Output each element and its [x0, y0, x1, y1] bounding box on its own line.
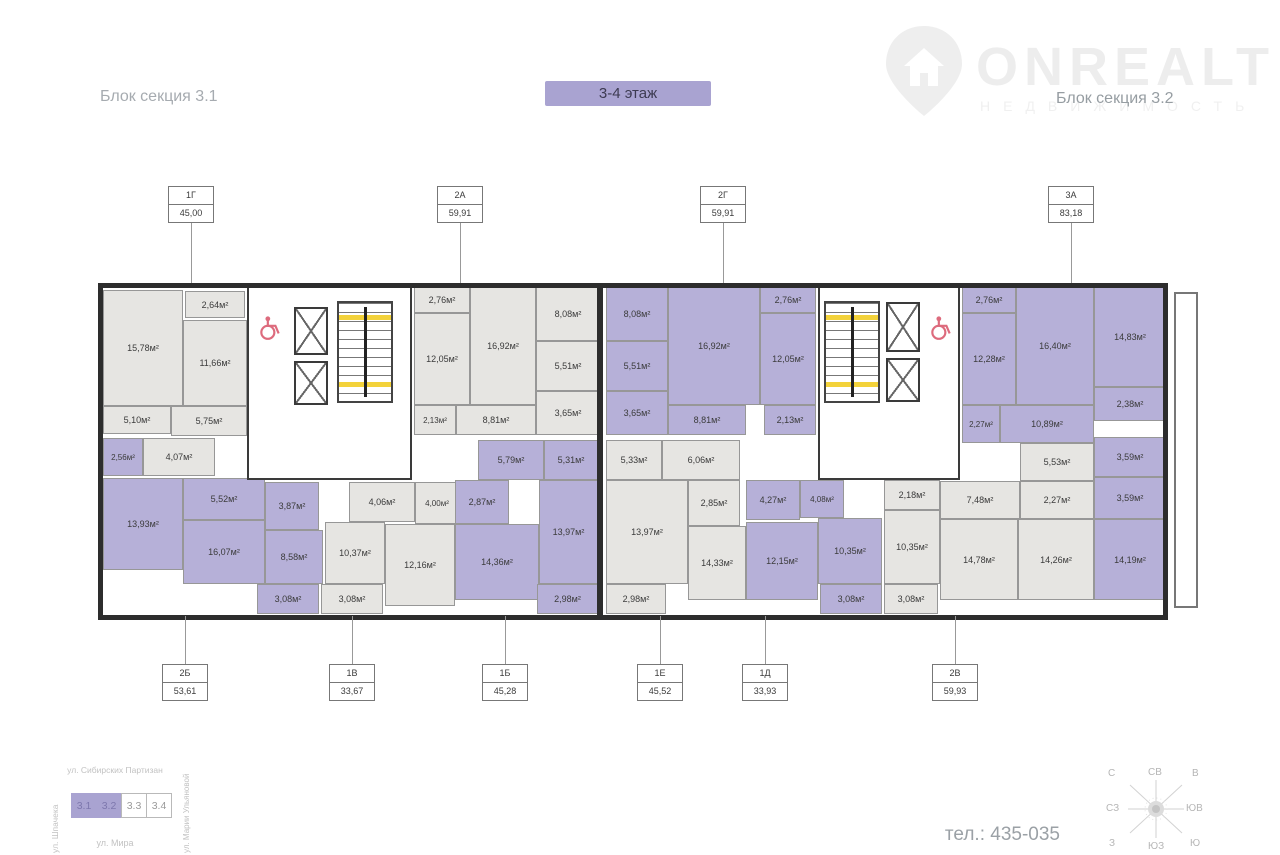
section-divider-wall — [597, 285, 603, 618]
room: 8,08м² — [536, 287, 600, 341]
room: 13,93м² — [103, 478, 183, 570]
unit-code: 1Е — [638, 665, 682, 682]
room: 2,27м² — [1020, 481, 1094, 519]
room-area-label: 8,58м² — [281, 552, 308, 562]
room: 14,78м² — [940, 519, 1018, 600]
unit-total-area: 33,67 — [330, 682, 374, 700]
unit-total-area: 33,93 — [743, 682, 787, 700]
unit-total-area: 59,91 — [438, 204, 482, 222]
room-area-label: 2,87м² — [469, 497, 496, 507]
room-area-label: 4,27м² — [760, 495, 787, 505]
room-area-label: 2,76м² — [429, 295, 456, 305]
stair-core-2 — [818, 285, 960, 480]
room-area-label: 3,08м² — [898, 594, 925, 604]
room-area-label: 3,65м² — [624, 408, 651, 418]
unit-total-area: 83,18 — [1049, 204, 1093, 222]
room: 14,33м² — [688, 526, 746, 600]
unit-total-area: 45,28 — [483, 682, 527, 700]
room-area-label: 10,89м² — [1031, 419, 1063, 429]
room: 10,37м² — [325, 522, 385, 584]
room-area-label: 2,38м² — [1117, 399, 1144, 409]
room-area-label: 4,06м² — [369, 497, 396, 507]
room: 2,13м² — [414, 405, 456, 435]
compass-direction-З: З — [1109, 838, 1115, 849]
room: 3,87м² — [265, 482, 319, 530]
room-area-label: 14,26м² — [1040, 555, 1072, 565]
unit-code: 3А — [1049, 187, 1093, 204]
section-left-label: Блок секция 3.1 — [100, 88, 218, 106]
room: 2,76м² — [414, 287, 470, 313]
room: 3,08м² — [884, 584, 938, 614]
unit-code: 1Г — [169, 187, 213, 204]
room-area-label: 12,05м² — [426, 354, 458, 364]
elevator-icon — [886, 358, 920, 402]
room-area-label: 5,75м² — [196, 416, 223, 426]
room: 4,00м² — [415, 482, 459, 524]
room: 6,06м² — [662, 440, 740, 480]
room: 8,81м² — [456, 405, 536, 435]
room: 5,10м² — [103, 406, 171, 434]
room-area-label: 13,97м² — [553, 527, 585, 537]
unit-code: 2В — [933, 665, 977, 682]
room: 2,85м² — [688, 480, 740, 526]
phone-number: тел.: 435-035 — [860, 824, 1060, 846]
unit-code: 2Г — [701, 187, 745, 204]
unit-tag-1В: 1В33,67 — [329, 664, 375, 701]
room-area-label: 2,27м² — [1044, 495, 1071, 505]
room: 10,89м² — [1000, 405, 1094, 443]
tag-connector-line — [1071, 222, 1072, 283]
staircase — [337, 301, 393, 403]
room-area-label: 14,19м² — [1114, 555, 1146, 565]
room-area-label: 12,16м² — [404, 560, 436, 570]
room: 16,92м² — [668, 287, 760, 405]
room-area-label: 14,36м² — [481, 557, 513, 567]
room-area-label: 10,35м² — [896, 542, 928, 552]
room-area-label: 4,08м² — [810, 495, 834, 504]
unit-tag-2В: 2В59,93 — [932, 664, 978, 701]
room-area-label: 13,93м² — [127, 519, 159, 529]
room-area-label: 14,78м² — [963, 555, 995, 565]
compass-direction-В: В — [1192, 768, 1199, 779]
room-area-label: 8,08м² — [624, 309, 651, 319]
logo-wordmark: ONREALT — [976, 36, 1275, 98]
unit-total-area: 59,93 — [933, 682, 977, 700]
unit-tag-1Г: 1Г45,00 — [168, 186, 214, 223]
room: 5,52м² — [183, 478, 265, 520]
room: 12,16м² — [385, 524, 455, 606]
room-area-label: 10,37м² — [339, 548, 371, 558]
block-tab-3.1[interactable]: 3.1 — [71, 793, 97, 818]
room: 3,59м² — [1094, 477, 1166, 519]
room-area-label: 13,97м² — [631, 527, 663, 537]
unit-tag-1Д: 1Д33,93 — [742, 664, 788, 701]
tag-connector-line — [185, 616, 186, 664]
room: 16,07м² — [183, 520, 265, 584]
room: 12,05м² — [760, 313, 816, 405]
room: 13,97м² — [539, 480, 598, 584]
room-area-label: 5,31м² — [558, 455, 585, 465]
room: 10,35м² — [818, 518, 882, 584]
room: 12,05м² — [414, 313, 470, 405]
room-area-label: 11,66м² — [199, 358, 230, 368]
room-area-label: 16,92м² — [487, 341, 519, 351]
tag-connector-line — [660, 616, 661, 664]
room: 3,08м² — [257, 584, 319, 614]
street-label-bottom: ул. Мира — [40, 838, 190, 848]
room-area-label: 15,78м² — [127, 343, 159, 353]
block-selector: 3.13.23.33.4 — [71, 793, 172, 818]
room-area-label: 5,51м² — [624, 361, 651, 371]
room: 2,76м² — [760, 287, 816, 313]
room-area-label: 2,18м² — [899, 490, 926, 500]
room-area-label: 2,13м² — [423, 416, 447, 425]
unit-tag-2Г: 2Г59,91 — [700, 186, 746, 223]
room-area-label: 3,08м² — [838, 594, 865, 604]
room-area-label: 5,10м² — [124, 415, 151, 425]
stair-rail — [851, 307, 854, 397]
room: 8,81м² — [668, 405, 746, 435]
tag-connector-line — [505, 616, 506, 664]
room: 16,92м² — [470, 287, 536, 405]
unit-code: 1Д — [743, 665, 787, 682]
room: 2,13м² — [764, 405, 816, 435]
room: 2,87м² — [455, 480, 509, 524]
room: 15,78м² — [103, 290, 183, 406]
room-area-label: 12,05м² — [772, 354, 804, 364]
room: 8,58м² — [265, 530, 323, 584]
room: 4,06м² — [349, 482, 415, 522]
room: 3,65м² — [606, 391, 668, 435]
unit-tag-3А: 3А83,18 — [1048, 186, 1094, 223]
unit-tag-2Б: 2Б53,61 — [162, 664, 208, 701]
wheelchair-icon — [928, 315, 954, 341]
unit-total-area: 45,52 — [638, 682, 682, 700]
room-area-label: 2,13м² — [777, 415, 804, 425]
room-area-label: 2,27м² — [969, 420, 993, 429]
elevator-icon — [294, 307, 328, 355]
elevator-icon — [294, 361, 328, 405]
room: 4,08м² — [800, 480, 844, 518]
unit-code: 1Б — [483, 665, 527, 682]
room: 5,79м² — [478, 440, 544, 480]
room: 2,98м² — [537, 584, 598, 614]
room-area-label: 7,48м² — [967, 495, 994, 505]
room: 5,51м² — [606, 341, 668, 391]
room-area-label: 4,00м² — [425, 499, 449, 508]
room: 3,59м² — [1094, 437, 1166, 477]
room: 16,40м² — [1016, 287, 1094, 405]
room-area-label: 16,92м² — [698, 341, 730, 351]
room: 8,08м² — [606, 287, 668, 341]
compass-rose: ССВВСЗЮВЗЮЗЮ — [1098, 764, 1218, 855]
onrealt-logo: ONREALT НЕДВИЖИМОСТЬ — [876, 18, 1256, 128]
compass-direction-С: С — [1108, 768, 1115, 779]
street-label-right: ул. Марии Ульяновой — [182, 768, 191, 853]
compass-direction-Ю: Ю — [1190, 838, 1200, 849]
tag-connector-line — [765, 616, 766, 664]
room: 11,66м² — [183, 320, 247, 406]
room: 5,33м² — [606, 440, 662, 480]
room: 5,53м² — [1020, 443, 1094, 481]
room: 2,64м² — [185, 291, 245, 318]
room-area-label: 2,98м² — [554, 594, 581, 604]
unit-code: 2Б — [163, 665, 207, 682]
room: 7,48м² — [940, 481, 1020, 519]
room-area-label: 2,85м² — [701, 498, 728, 508]
floor-badge: 3-4 этаж — [545, 81, 711, 106]
room: 2,27м² — [962, 405, 1000, 443]
room: 14,26м² — [1018, 519, 1094, 600]
room-area-label: 3,87м² — [279, 501, 306, 511]
room-area-label: 5,79м² — [498, 455, 525, 465]
room-area-label: 5,33м² — [621, 455, 648, 465]
room: 4,27м² — [746, 480, 800, 520]
room: 4,07м² — [143, 438, 215, 476]
room-area-label: 3,08м² — [339, 594, 366, 604]
stair-rail — [364, 307, 367, 397]
room-area-label: 5,53м² — [1044, 457, 1071, 467]
unit-code: 1В — [330, 665, 374, 682]
room: 14,19м² — [1094, 519, 1166, 600]
room: 3,08м² — [820, 584, 882, 614]
room-area-label: 4,07м² — [166, 452, 193, 462]
room-area-label: 3,65м² — [555, 408, 582, 418]
tag-connector-line — [352, 616, 353, 664]
room: 3,08м² — [321, 584, 383, 614]
room: 13,97м² — [606, 480, 688, 584]
room: 12,15м² — [746, 522, 818, 600]
unit-code: 2А — [438, 187, 482, 204]
room-area-label: 5,51м² — [555, 361, 582, 371]
tag-connector-line — [723, 222, 724, 283]
elevator-icon — [886, 302, 920, 352]
unit-tag-1Е: 1Е45,52 — [637, 664, 683, 701]
room: 2,98м² — [606, 584, 666, 614]
room-area-label: 14,83м² — [1114, 332, 1146, 342]
room-area-label: 14,33м² — [701, 558, 733, 568]
room-area-label: 3,59м² — [1117, 452, 1144, 462]
logo-pin-house-icon — [876, 20, 972, 122]
compass-direction-ЮВ: ЮВ — [1186, 803, 1203, 814]
room-area-label: 8,81м² — [483, 415, 510, 425]
block-tab-3.3[interactable]: 3.3 — [121, 793, 147, 818]
room-area-label: 8,81м² — [694, 415, 721, 425]
room-area-label: 16,40м² — [1039, 341, 1071, 351]
room: 5,75м² — [171, 406, 247, 436]
room: 12,28м² — [962, 313, 1016, 405]
compass-direction-СЗ: СЗ — [1106, 803, 1119, 814]
tag-connector-line — [460, 222, 461, 283]
tag-connector-line — [955, 616, 956, 664]
street-label-top: ул. Сибирских Партизан — [40, 765, 190, 775]
unit-total-area: 53,61 — [163, 682, 207, 700]
room-area-label: 5,52м² — [211, 494, 238, 504]
room-area-label: 2,76м² — [976, 295, 1003, 305]
side-balcony-strip — [1174, 292, 1198, 608]
room-area-label: 6,06м² — [688, 455, 715, 465]
room: 5,51м² — [536, 341, 600, 391]
floorplan-page: Блок секция 3.1 3-4 этаж ONREALT НЕДВИЖИ… — [0, 0, 1280, 855]
wheelchair-icon — [257, 315, 283, 341]
room-area-label: 2,56м² — [111, 453, 135, 462]
tag-connector-line — [191, 222, 192, 283]
staircase — [824, 301, 880, 403]
section-right-label: Блок секция 3.2 — [1056, 90, 1174, 108]
room-area-label: 3,08м² — [275, 594, 302, 604]
room-area-label: 12,28м² — [973, 354, 1005, 364]
room: 14,83м² — [1094, 287, 1166, 387]
room: 5,31м² — [544, 440, 598, 480]
room-area-label: 2,64м² — [202, 300, 229, 310]
unit-tag-1Б: 1Б45,28 — [482, 664, 528, 701]
room-area-label: 12,15м² — [766, 556, 798, 566]
compass-direction-ЮЗ: ЮЗ — [1148, 841, 1164, 852]
room-area-label: 16,07м² — [208, 547, 240, 557]
block-tab-3.4[interactable]: 3.4 — [146, 793, 172, 818]
stair-core-1 — [247, 285, 412, 480]
room: 2,56м² — [103, 438, 143, 476]
unit-tag-2А: 2А59,91 — [437, 186, 483, 223]
compass-direction-СВ: СВ — [1148, 767, 1162, 778]
room: 3,65м² — [536, 391, 600, 435]
room: 14,36м² — [455, 524, 539, 600]
room-area-label: 2,98м² — [623, 594, 650, 604]
room: 2,38м² — [1094, 387, 1166, 421]
room: 2,18м² — [884, 480, 940, 510]
room-area-label: 3,59м² — [1117, 493, 1144, 503]
unit-total-area: 59,91 — [701, 204, 745, 222]
unit-total-area: 45,00 — [169, 204, 213, 222]
block-tab-3.2[interactable]: 3.2 — [96, 793, 122, 818]
room-area-label: 2,76м² — [775, 295, 802, 305]
room: 10,35м² — [884, 510, 940, 584]
room-area-label: 10,35м² — [834, 546, 866, 556]
room: 2,76м² — [962, 287, 1016, 313]
room-area-label: 8,08м² — [555, 309, 582, 319]
